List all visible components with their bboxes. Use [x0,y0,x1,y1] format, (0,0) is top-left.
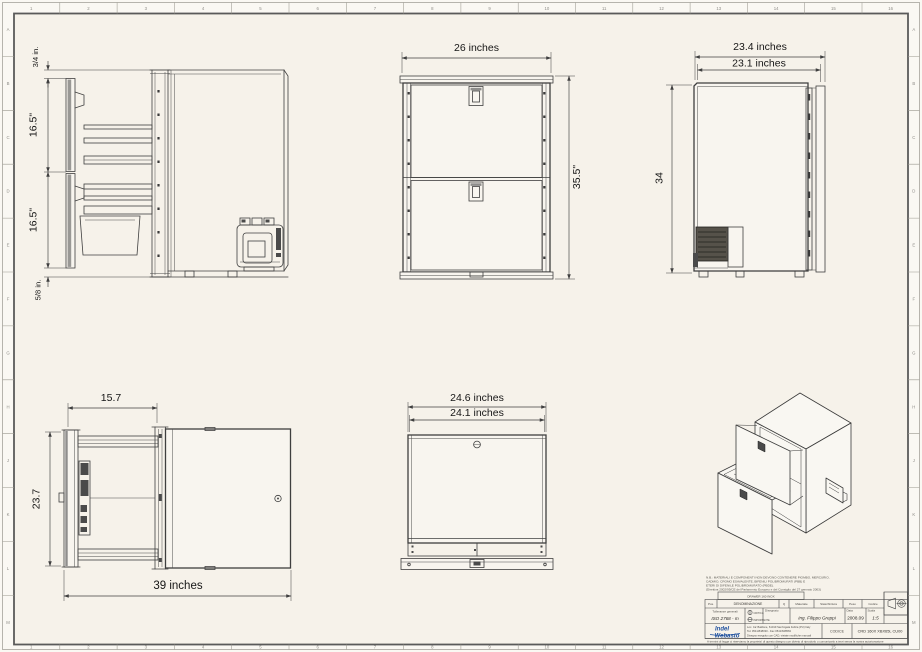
drawn-by: Ing. Filippo Greppi [798,616,837,621]
svg-text:A: A [7,27,10,32]
scale-value: 1:5 [872,616,879,621]
svg-text:E: E [912,243,915,248]
svg-text:16: 16 [888,6,893,11]
dim-side-height: 34 [654,172,666,184]
dim-top-width-overall: 24.6 inches [450,392,504,404]
critica-label: CRITICA [754,612,764,615]
svg-text:15: 15 [831,6,836,11]
dim-upper-drawer: 16.5" [28,113,40,137]
svg-text:D: D [6,189,9,194]
header-peso: Peso [849,602,856,606]
header-denominazione: DENOMINAZIONE [734,602,763,606]
svg-text:C: C [912,135,915,140]
svg-text:J: J [913,458,915,463]
importante-label: IMPORTANTE [754,619,770,622]
svg-text:H: H [912,404,915,409]
date-value: 2008.09 [847,616,864,621]
svg-text:E: E [7,243,10,248]
svg-text:14: 14 [774,6,779,11]
header-codice: Codice [868,602,878,606]
svg-text:10: 10 [545,6,550,11]
dim-top-width-body: 24.1 inches [450,407,504,419]
svg-text:14: 14 [774,645,779,650]
logo-line1: Indel [715,627,729,633]
svg-text:K: K [7,512,10,517]
dim-extension: 15.7 [101,392,122,404]
svg-text:16: 16 [888,645,893,650]
plan-cabinet-body [166,428,291,570]
tolerance-label: Tolleranze generali [712,610,738,614]
svg-text:13: 13 [716,6,721,11]
header-stato: Stato/finitura [820,602,837,606]
svg-text:C: C [6,135,9,140]
cad-note: Disegno eseguito con CAD, vietate modifi… [747,634,811,638]
address-line2: Tel. 0541/848030 - Fax 0541/848563 [747,629,791,633]
top-view-body [408,435,546,556]
note-line-4: (Direttiva 2002/95/CE del Parlamento Eur… [706,588,821,592]
svg-text:12: 12 [659,645,664,650]
svg-text:10: 10 [545,645,550,650]
svg-text:B: B [7,81,10,86]
drawing-page: 12345678910111213141516 1234567891011121… [0,0,922,652]
svg-text:D: D [912,189,915,194]
legal-text: A termini di legge ci riserviamo la prop… [707,640,884,644]
dim-front-height: 35.5" [571,165,583,189]
svg-text:11: 11 [602,6,607,11]
codice-value: CRD 160X XBX65L CU00 [858,629,904,634]
drawn-label: Disegnato [765,609,779,613]
tolerance-value: ISO 2768 - m [711,616,738,621]
top-base-plate [401,559,553,570]
dim-front-width: 26 inches [454,42,499,54]
svg-text:K: K [912,512,915,517]
svg-text:F: F [7,297,10,302]
dim-lower-drawer: 16.5" [28,208,40,232]
svg-text:15: 15 [831,645,836,650]
dim-bottom-gap: 5/8 in. [34,280,43,301]
svg-text:A: A [912,27,915,32]
svg-text:11: 11 [602,645,607,650]
dim-top-gap: 3/4 in. [31,47,40,68]
scale-label: Scala [868,609,876,613]
dim-total-length: 39 inches [153,580,202,592]
header-materiale: Materiale [795,602,808,606]
svg-text:J: J [7,458,9,463]
technical-drawing-sheet: 12345678910111213141516 1234567891011121… [0,0,922,652]
svg-text:12: 12 [659,6,664,11]
svg-text:F: F [912,297,915,302]
svg-text:13: 13 [716,645,721,650]
dim-plan-depth: 23.7 [31,489,43,510]
codice-label: CODICE [830,630,845,634]
header-pos: Pos. [708,602,714,606]
date-label: Data [847,609,854,613]
address-line1: Loc. Ca' Baldone, 61019 Sant'Agata Feltr… [747,625,811,629]
svg-text:H: H [6,404,9,409]
svg-text:M: M [6,620,10,625]
svg-text:M: M [912,620,916,625]
denomination-text: DRAWER 160 INOX [747,594,774,598]
dim-depth-overall: 23.4 inches [733,41,787,53]
dim-depth-body: 23.1 inches [732,58,786,70]
svg-text:B: B [912,81,915,86]
